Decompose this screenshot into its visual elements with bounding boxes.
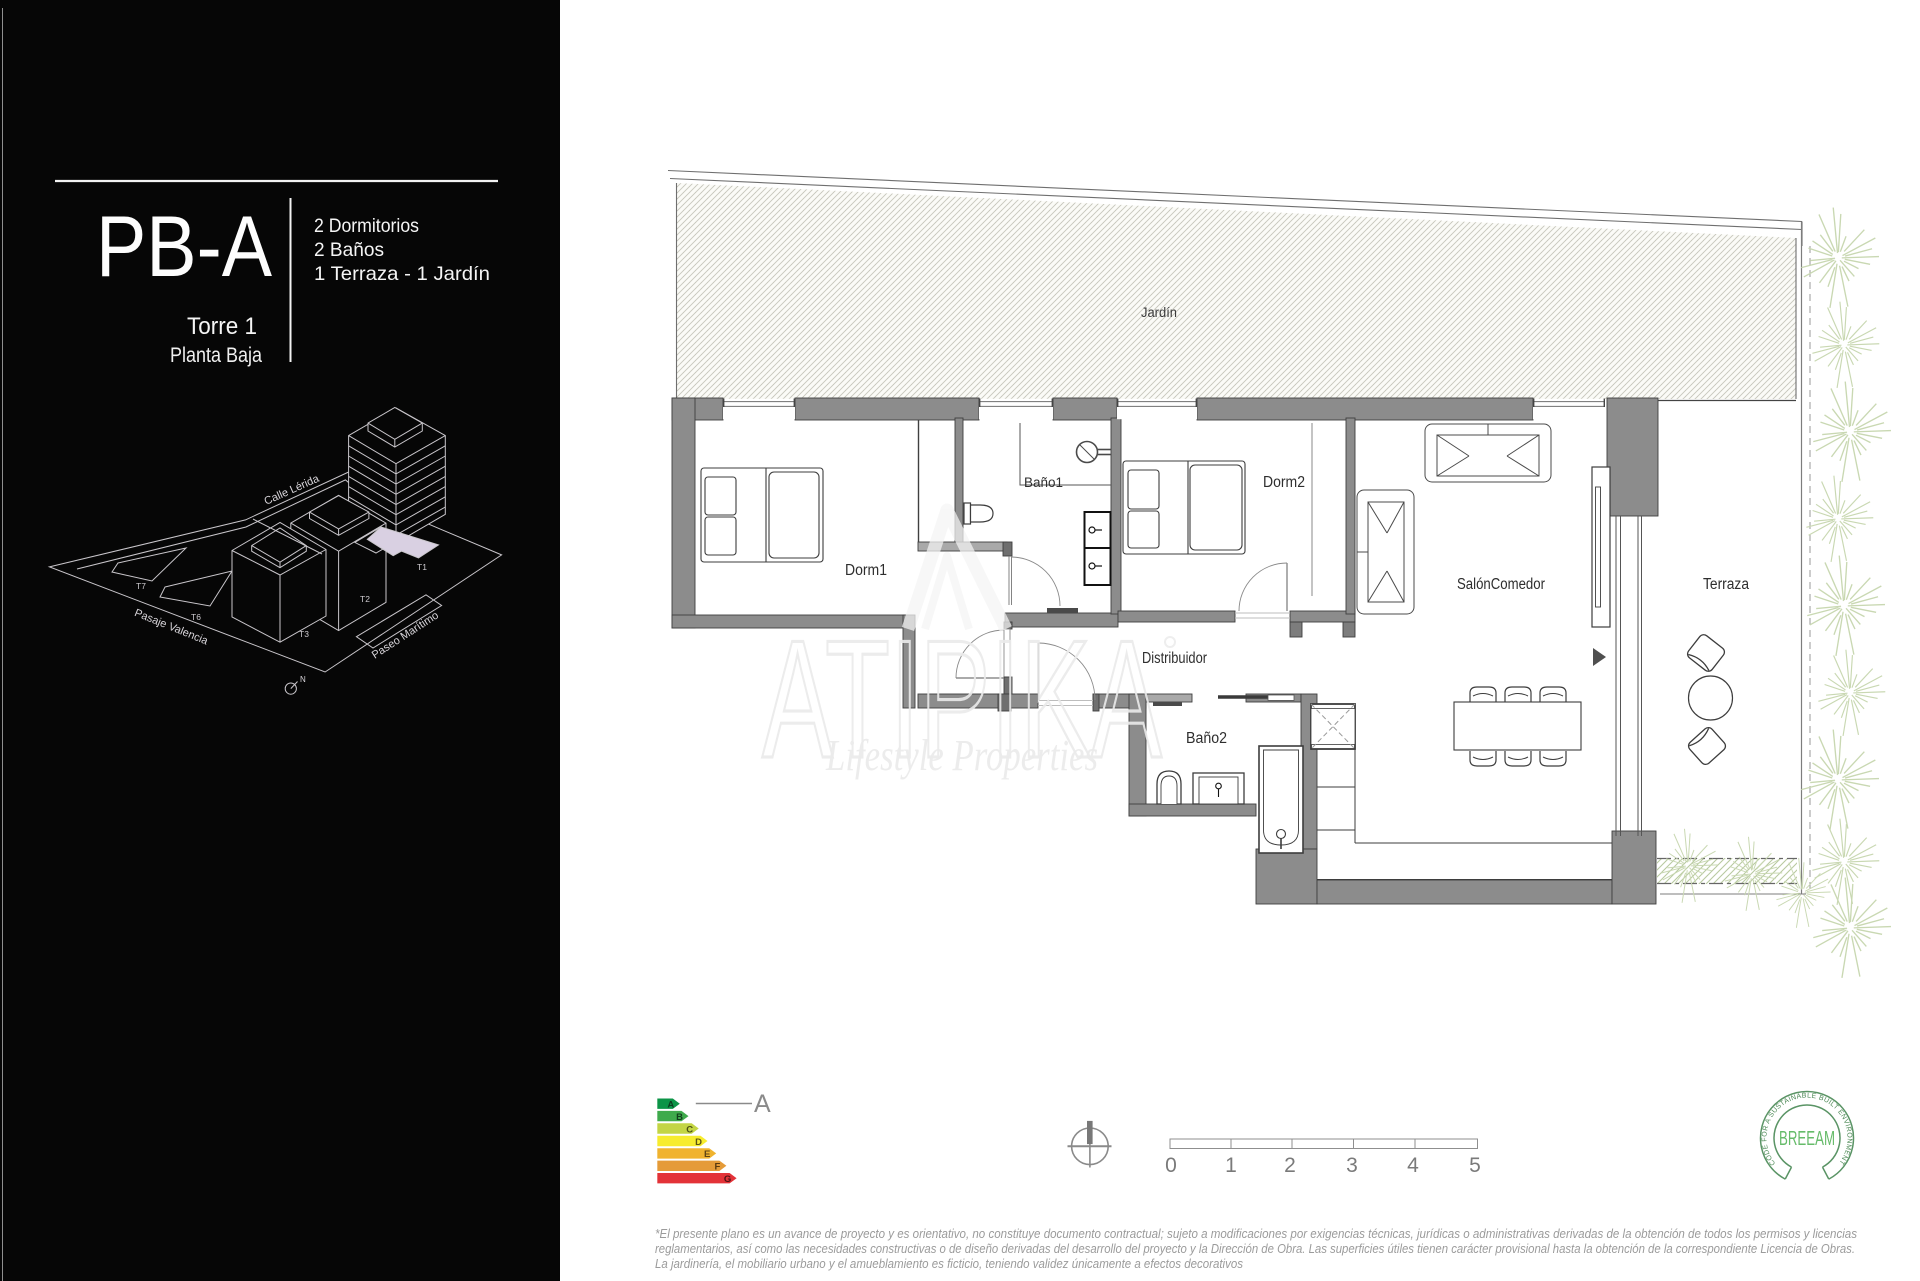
svg-text:B: B (676, 1112, 683, 1123)
svg-text:reglamentarios, así como las n: reglamentarios, así como las necesidades… (655, 1241, 1855, 1256)
svg-text:BREEAM: BREEAM (1779, 1128, 1835, 1150)
svg-text:Jardín: Jardín (1141, 305, 1177, 320)
svg-text:Dorm2: Dorm2 (1263, 474, 1305, 491)
svg-text:1: 1 (1225, 1154, 1237, 1177)
svg-text:3: 3 (1346, 1154, 1358, 1177)
svg-text:T2: T2 (360, 594, 370, 604)
svg-text:T6: T6 (191, 612, 201, 622)
svg-text:2 Dormitorios: 2 Dormitorios (314, 215, 419, 237)
svg-text:Torre 1: Torre 1 (187, 313, 257, 340)
svg-text:A: A (754, 1090, 771, 1118)
svg-text:G: G (724, 1174, 731, 1185)
svg-text:0: 0 (1165, 1154, 1177, 1177)
svg-text:T1: T1 (417, 562, 427, 572)
svg-text:C: C (686, 1124, 693, 1135)
svg-text:Baño2: Baño2 (1186, 730, 1227, 747)
svg-text:F: F (714, 1162, 720, 1173)
svg-text:E: E (704, 1149, 710, 1160)
svg-text:Planta Baja: Planta Baja (170, 344, 262, 367)
svg-text:N: N (300, 675, 306, 684)
svg-text:A: A (667, 1100, 674, 1111)
svg-text:PB-A: PB-A (96, 199, 273, 295)
svg-text:SalónComedor: SalónComedor (1457, 576, 1545, 593)
svg-text:Terraza: Terraza (1703, 576, 1749, 593)
svg-text:Dorm1: Dorm1 (845, 562, 887, 579)
svg-text:5: 5 (1469, 1154, 1481, 1177)
svg-text:La jardinería, el mobiliario u: La jardinería, el mobiliario urbano y el… (655, 1256, 1243, 1271)
svg-text:*El presente plano es un avanc: *El presente plano es un avance de proye… (655, 1226, 1857, 1241)
svg-text:T7: T7 (136, 581, 146, 591)
svg-text:Lifestyle Properties: Lifestyle Properties (825, 731, 1098, 780)
svg-text:4: 4 (1407, 1154, 1419, 1177)
svg-text:1 Terraza - 1 Jardín: 1 Terraza - 1 Jardín (314, 263, 490, 285)
svg-text:2: 2 (1284, 1154, 1296, 1177)
svg-text:T3: T3 (299, 629, 309, 639)
svg-text:Baño1: Baño1 (1024, 475, 1063, 490)
svg-text:D: D (695, 1137, 702, 1148)
svg-text:2 Baños: 2 Baños (314, 239, 384, 261)
